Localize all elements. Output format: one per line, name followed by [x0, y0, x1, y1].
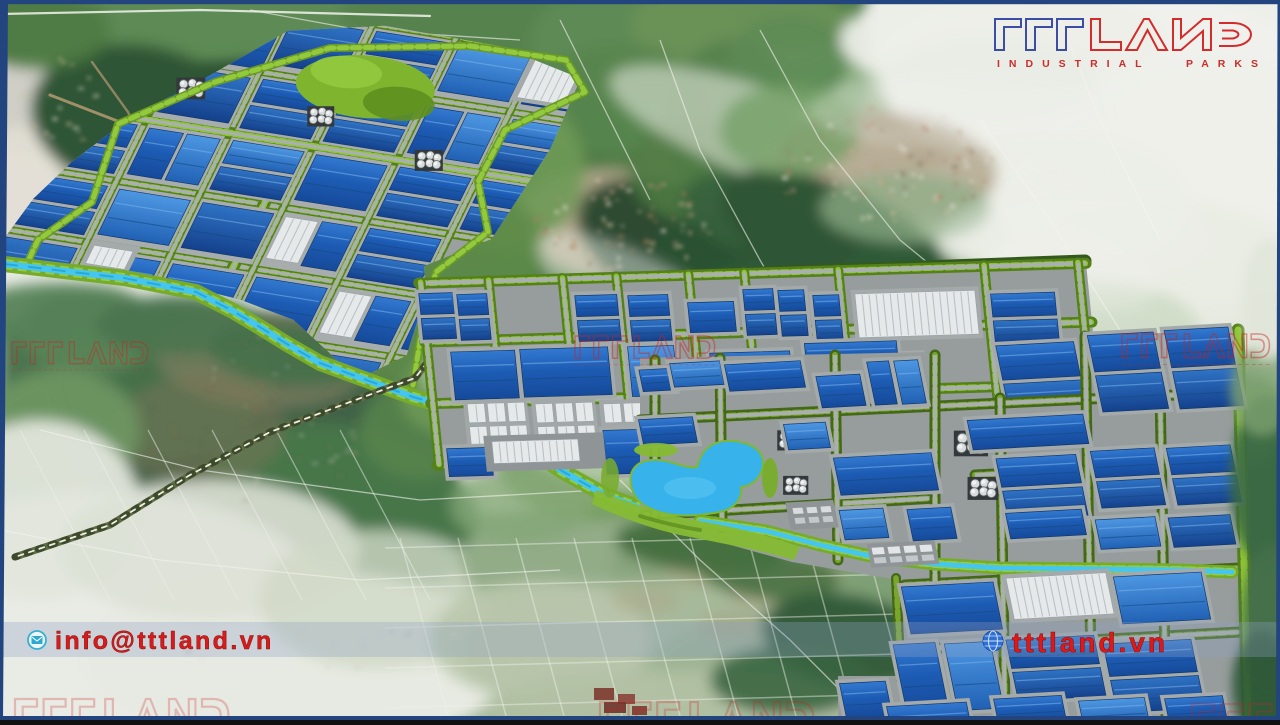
svg-text:INDUSTRIAL: INDUSTRIAL: [997, 58, 1151, 70]
svg-text:info@tttland.vn: info@tttland.vn: [55, 627, 274, 655]
svg-text:tttland.vn: tttland.vn: [1012, 627, 1168, 658]
svg-text:PARKS: PARKS: [1186, 58, 1267, 70]
